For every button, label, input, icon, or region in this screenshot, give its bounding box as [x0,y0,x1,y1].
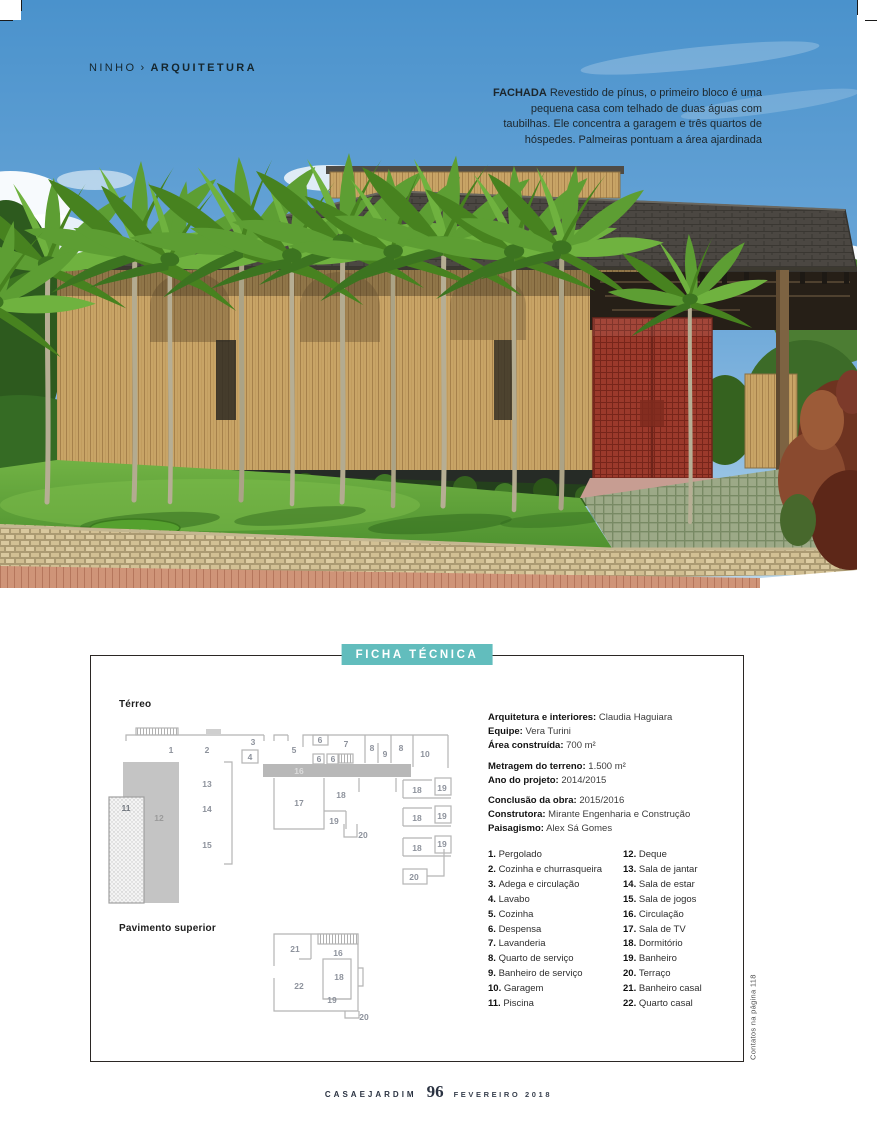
room-number: 16 [333,948,343,958]
legend-number: 21. [623,983,639,994]
spec-label: Metragem do terreno: [488,761,586,772]
spec-value: Mirante Engenharia e Construção [546,809,691,820]
spec-line: Arquitetura e interiores: Claudia Haguia… [488,711,738,725]
legend-room-name: Sala de estar [639,879,695,890]
room-number: 4 [248,752,253,762]
legend-column-left: 1. Pergolado2. Cozinha e churrasqueira3.… [488,848,623,1012]
legend-room-name: Garagem [504,983,544,994]
spec-value: Claudia Haguiara [596,712,672,723]
legend-item: 10. Garagem [488,982,623,997]
room-number: 19 [437,839,447,849]
room-number: 18 [412,813,422,823]
red-garage-door [593,318,712,478]
legend-item: 19. Banheiro [623,952,741,967]
spec-label: Ano do projeto: [488,775,559,786]
legend-room-name: Sala de TV [639,924,686,935]
spec-label: Arquitetura e interiores: [488,712,596,723]
category-name: ARQUITETURA [151,62,257,74]
spec-line: Paisagismo: Alex Sá Gomes [488,822,738,836]
legend-room-name: Pergolado [499,849,542,860]
spec-list: Arquitetura e interiores: Claudia Haguia… [488,711,738,843]
room-number: 11 [122,803,131,813]
legend-number: 5. [488,909,499,920]
room-number: 19 [437,811,447,821]
spec-value: Vera Turini [523,726,571,737]
room-number: 21 [290,944,300,954]
legend-number: 9. [488,968,499,979]
photo-caption: FACHADA Revestido de pínus, o primeiro b… [484,86,762,148]
spec-line: Construtora: Mirante Engenharia e Constr… [488,808,738,822]
facade-photo: NINHO›ARQUITETURA FACHADA Revestido de p… [0,0,857,588]
spec-line: Área construída: 700 m² [488,739,738,753]
spec-value: 2015/2016 [577,795,625,806]
issue-date: FEVEREIRO 2018 [454,1090,553,1099]
legend-number: 18. [623,938,639,949]
legend-item: 7. Lavanderia [488,937,623,952]
spec-value: 2014/2015 [559,775,607,786]
legend-number: 3. [488,879,499,890]
spec-line: Ano do projeto: 2014/2015 [488,774,738,788]
spec-label: Construtora: [488,809,546,820]
legend-item: 3. Adega e circulação [488,878,623,893]
legend-number: 2. [488,864,499,875]
legend-number: 6. [488,924,499,935]
legend-room-name: Lavanderia [499,938,546,949]
legend-room-name: Sala de jantar [639,864,698,875]
room-number: 20 [359,1012,369,1022]
terreo-floor-plan: 1234567898106616131415121117181920181918… [101,691,461,906]
section-kicker: NINHO›ARQUITETURA [89,62,257,74]
legend-number: 22. [623,998,639,1009]
section-separator: › [140,62,146,74]
section-name: NINHO [89,62,136,74]
legend-item: 15. Sala de jogos [623,893,741,908]
legend-room-name: Quarto casal [639,998,693,1009]
room-number: 13 [202,779,212,789]
superior-room-numbers: 211618221920 [290,944,369,1022]
room-number: 18 [334,972,344,982]
legend-item: 14. Sala de estar [623,878,741,893]
legend-item: 2. Cozinha e churrasqueira [488,863,623,878]
legend-number: 17. [623,924,639,935]
legend-number: 20. [623,968,639,979]
legend-number: 10. [488,983,504,994]
legend-item: 16. Circulação [623,908,741,923]
legend-room-name: Sala de jogos [639,894,697,905]
legend-number: 1. [488,849,499,860]
spec-line: Conclusão da obra: 2015/2016 [488,794,738,808]
legend-item: 22. Quarto casal [623,997,741,1012]
legend-item: 6. Despensa [488,923,623,938]
superior-floor-plan: 211618221920 [101,906,461,1056]
spec-value: 1.500 m² [586,761,626,772]
room-number: 1 [169,745,174,755]
legend-item: 11. Piscina [488,997,623,1012]
room-number: 19 [437,783,447,793]
legend-room-name: Banheiro [639,953,677,964]
room-number: 22 [294,981,304,991]
room-number: 10 [420,749,430,759]
room-number: 20 [409,872,419,882]
legend-item: 17. Sala de TV [623,923,741,938]
room-number: 9 [383,749,388,759]
magazine-name: CASAEJARDIM [325,1090,417,1099]
room-number: 3 [251,737,256,747]
crop-mark [0,20,13,21]
legend-number: 16. [623,909,639,920]
legend-number: 19. [623,953,639,964]
legend-room-name: Lavabo [499,894,530,905]
spec-line: Metragem do terreno: 1.500 m² [488,760,738,774]
legend-room-name: Dormitório [639,938,683,949]
spec-label: Paisagismo: [488,823,544,834]
room-number: 14 [202,804,212,814]
legend-room-name: Despensa [499,924,542,935]
legend-number: 7. [488,938,499,949]
room-number: 18 [412,843,422,853]
room-number: 2 [205,745,210,755]
legend-room-name: Quarto de serviço [499,953,574,964]
legend-room-name: Cozinha e churrasqueira [499,864,603,875]
legend-item: 18. Dormitório [623,937,741,952]
room-number: 18 [336,790,346,800]
room-number: 6 [317,754,322,764]
room-number: 17 [294,798,304,808]
spec-group: Arquitetura e interiores: Claudia Haguia… [488,711,738,754]
room-legend: 1. Pergolado2. Cozinha e churrasqueira3.… [488,848,741,1012]
spec-group: Metragem do terreno: 1.500 m²Ano do proj… [488,760,738,788]
legend-room-name: Terraço [639,968,671,979]
legend-number: 11. [488,998,503,1009]
legend-room-name: Circulação [639,909,684,920]
room-number: 19 [327,995,337,1005]
window [494,340,512,420]
legend-item: 12. Deque [623,848,741,863]
room-number: 15 [202,840,212,850]
page-footer: CASAEJARDIM 96 FEVEREIRO 2018 [0,1082,877,1102]
room-number: 8 [399,743,404,753]
spec-value: 700 m² [564,740,596,751]
legend-item: 20. Terraço [623,967,741,982]
room-number: 19 [329,816,339,826]
legend-item: 21. Banheiro casal [623,982,741,997]
page-number: 96 [427,1082,444,1102]
ficha-tecnica-title: FICHA TÉCNICA [342,644,493,665]
legend-item: 13. Sala de jantar [623,863,741,878]
legend-item: 5. Cozinha [488,908,623,923]
legend-item: 4. Lavabo [488,893,623,908]
spec-label: Área construída: [488,740,564,751]
crop-corner-mask [0,0,21,20]
caption-title: FACHADA [493,87,547,99]
legend-item: 8. Quarto de serviço [488,952,623,967]
spec-line: Equipe: Vera Turini [488,725,738,739]
legend-room-name: Banheiro de serviço [499,968,583,979]
spec-label: Conclusão da obra: [488,795,577,806]
room-number: 6 [318,735,323,745]
legend-number: 15. [623,894,639,905]
room-number: 18 [412,785,422,795]
room-number: 7 [344,739,349,749]
room-number: 6 [331,754,336,764]
window [216,340,236,420]
legend-number: 13. [623,864,639,875]
room-number: 5 [292,745,297,755]
legend-room-name: Cozinha [499,909,534,920]
legend-room-name: Piscina [503,998,534,1009]
room-number: 8 [370,743,375,753]
legend-column-right: 12. Deque13. Sala de jantar14. Sala de e… [623,848,741,1012]
legend-room-name: Adega e circulação [499,879,580,890]
legend-number: 4. [488,894,499,905]
legend-number: 12. [623,849,639,860]
contact-note: Contatos na página 118 [747,944,759,1060]
crop-mark [857,0,858,15]
legend-room-name: Deque [639,849,667,860]
legend-number: 14. [623,879,639,890]
room-number: 20 [358,830,368,840]
legend-number: 8. [488,953,499,964]
spec-value: Alex Sá Gomes [544,823,612,834]
crop-mark [865,20,877,21]
legend-item: 1. Pergolado [488,848,623,863]
room-number: 16 [294,766,304,776]
ficha-tecnica-box: FICHA TÉCNICA Térreo [90,655,744,1062]
room-number: 12 [154,813,164,823]
legend-room-name: Banheiro casal [639,983,702,994]
spec-label: Equipe: [488,726,523,737]
legend-item: 9. Banheiro de serviço [488,967,623,982]
crop-mark [21,0,22,11]
spec-group: Conclusão da obra: 2015/2016Construtora:… [488,794,738,837]
